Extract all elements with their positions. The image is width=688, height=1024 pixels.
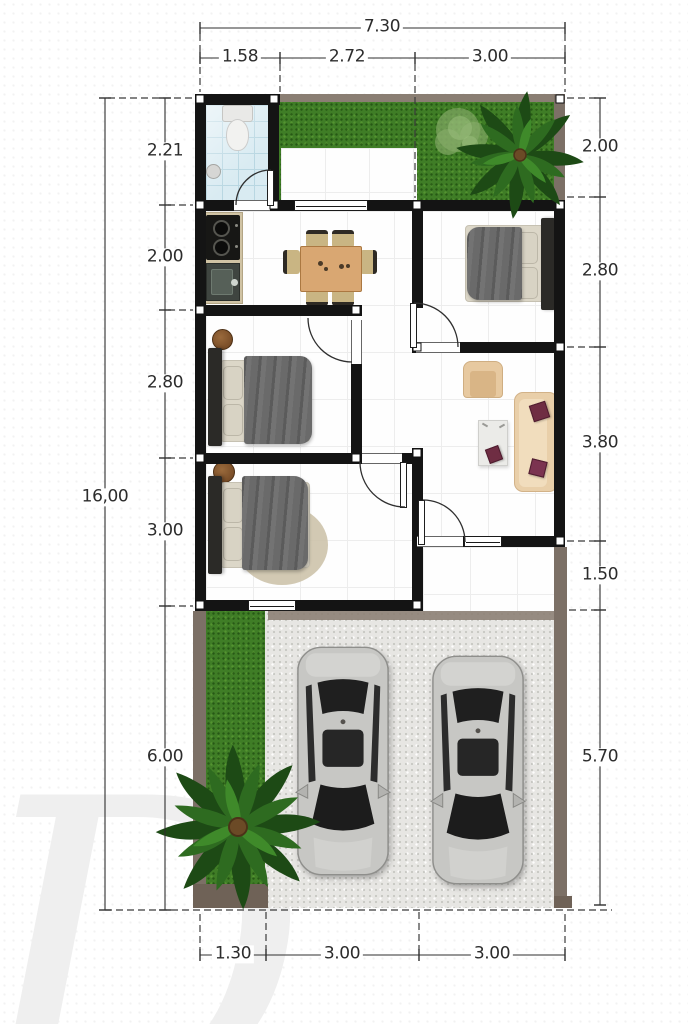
dim-right-segment-1: 2.00	[579, 138, 621, 156]
dim-bottom-segment-2: 3.00	[321, 945, 363, 963]
door-arcs	[236, 170, 465, 542]
dim-left-segment-5: 6.00	[144, 748, 186, 766]
floorplan-canvas: D	[0, 0, 688, 1024]
dim-bottom-segment-1: 1.30	[212, 945, 254, 963]
dim-top-total: 7.30	[361, 18, 403, 36]
dimension-guides	[105, 34, 612, 950]
dimension-ticks	[99, 22, 606, 961]
dim-left-total: 16,00	[79, 488, 132, 506]
dim-right-segment-4: 1.50	[579, 566, 621, 584]
dim-left-segment-3: 2.80	[144, 374, 186, 392]
dimension-lines	[105, 28, 600, 955]
dim-bottom-segment-3: 3.00	[471, 945, 513, 963]
dim-left-segment-4: 3.00	[144, 522, 186, 540]
dim-left-segment-1: 2.21	[144, 142, 186, 160]
dim-right-segment-3: 3.80	[579, 434, 621, 452]
dim-top-segment-2: 2.72	[326, 48, 368, 66]
dim-left-segment-2: 2.00	[144, 248, 186, 266]
dim-right-segment-2: 2.80	[579, 262, 621, 280]
dim-top-segment-1: 1.58	[219, 48, 261, 66]
dim-top-segment-3: 3.00	[469, 48, 511, 66]
dim-right-segment-5: 5.70	[579, 748, 621, 766]
